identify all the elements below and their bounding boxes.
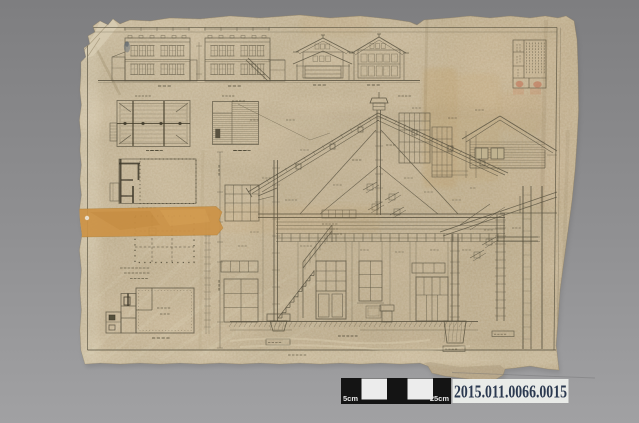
- svg-text:25cm: 25cm: [430, 394, 450, 403]
- svg-text:5cm: 5cm: [343, 394, 358, 403]
- svg-text:2015.011.0066.0015: 2015.011.0066.0015: [454, 382, 567, 402]
